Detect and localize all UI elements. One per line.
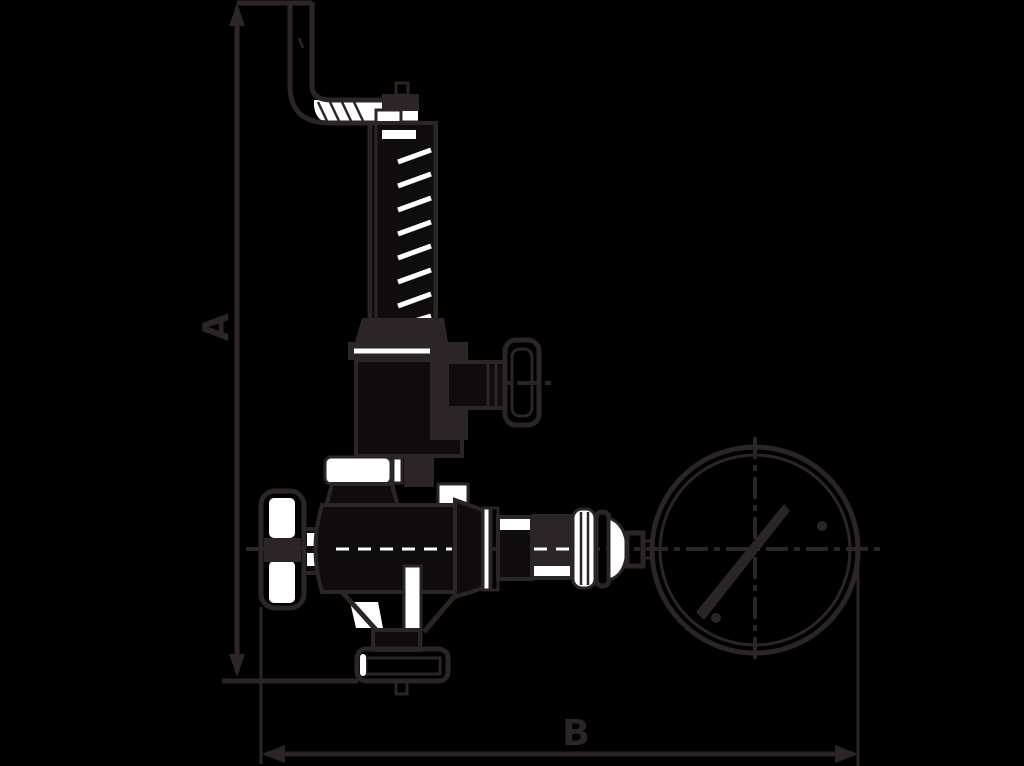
bracket-tube-mark <box>299 38 303 48</box>
outlet-flange <box>357 649 448 694</box>
bonnet-top-taper <box>355 318 448 342</box>
dim-b-arrow-left-icon <box>262 745 285 763</box>
union-nut-highlight <box>534 566 570 576</box>
handwheel-panel-bottom <box>269 561 295 603</box>
handwheel-panel-top <box>269 498 295 538</box>
dim-a-arrow-down-icon <box>229 654 245 677</box>
valve-body <box>316 505 459 694</box>
cone-adapter <box>609 518 627 580</box>
spring-tube <box>370 123 436 333</box>
union-ring-1 <box>483 508 490 590</box>
pipe-highlight <box>500 519 530 530</box>
dim-b-arrow-right-icon <box>835 745 858 763</box>
handwheel-hub-band <box>264 538 301 562</box>
gauge-dial-dot-left <box>711 613 721 623</box>
dim-a-label: A <box>196 313 237 341</box>
valve-technical-drawing: A B <box>0 0 1024 766</box>
outlet-flange-highlight <box>360 654 366 676</box>
dim-a-arrow-up-icon <box>229 3 245 26</box>
handwheel <box>261 491 322 608</box>
outlet-flange-inner <box>366 658 440 674</box>
gauge-needle <box>696 504 790 620</box>
gauge-dial-dot-right <box>817 521 827 531</box>
body-outlet-taper <box>455 500 483 597</box>
spring-housing <box>369 123 436 333</box>
mid-flange-block <box>404 455 434 487</box>
cap-nub <box>396 83 408 95</box>
outlet-flange-rim <box>357 649 448 681</box>
drawing-canvas: A B <box>0 0 1024 766</box>
cap-body <box>382 94 419 111</box>
mid-flange-collar <box>393 458 402 483</box>
bracket-inner-edge <box>312 2 418 100</box>
dim-b-label: B <box>562 713 589 754</box>
mid-flange-plate <box>325 457 391 484</box>
hex-union <box>573 509 595 588</box>
union-ring-3 <box>596 512 609 586</box>
gauge-pipe-run <box>455 500 652 597</box>
outlet-skirt <box>342 592 458 650</box>
